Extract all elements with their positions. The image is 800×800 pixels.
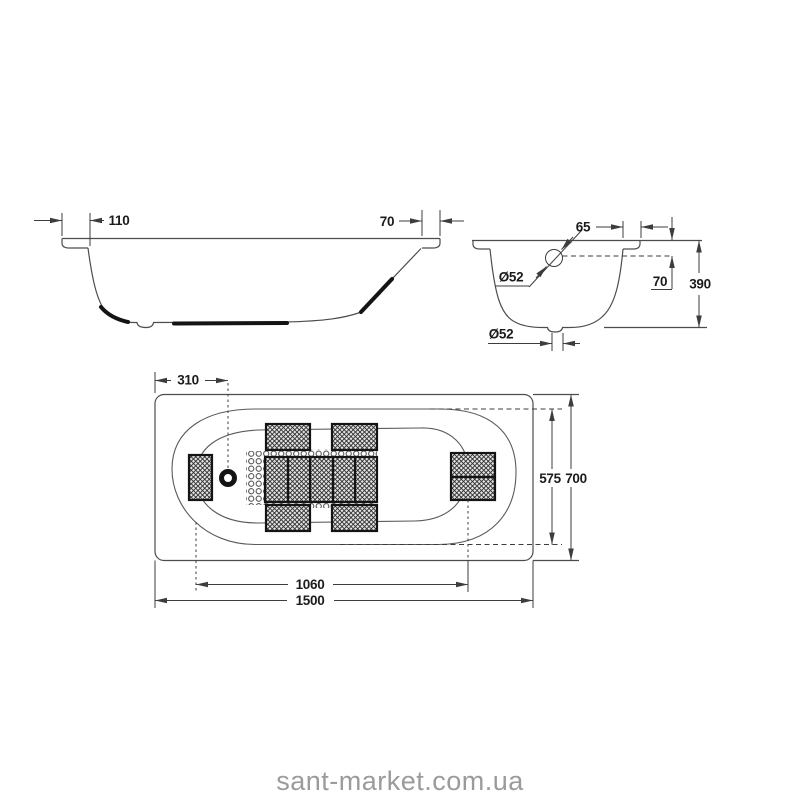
dim-label-65: 65	[576, 220, 591, 235]
dim-label-drain-diameter: Ø52	[489, 327, 514, 342]
antislip-pad-left	[189, 455, 212, 500]
side-view: 110 70	[34, 210, 464, 328]
antislip-pad-center	[265, 457, 377, 502]
antislip-dots-left	[246, 451, 266, 505]
floor-reinforcement-right	[361, 279, 392, 312]
top-view: 310 575 700 1060 1500	[155, 372, 587, 608]
dim-label-700: 700	[565, 471, 587, 486]
dim-label-575: 575	[539, 471, 561, 486]
antislip-pad-bottom-left	[266, 505, 310, 531]
dim-label-1060: 1060	[296, 577, 325, 592]
bathtub-technical-drawing: 110 70 Ø52 65 70 390	[0, 0, 800, 800]
dim-label-110: 110	[109, 213, 130, 228]
drawing-canvas: 110 70 Ø52 65 70 390	[0, 0, 800, 800]
dim-label-310: 310	[177, 373, 199, 388]
section-view: Ø52 65 70 390 Ø52	[472, 217, 711, 351]
drain-hole	[222, 472, 235, 485]
antislip-pad-top-right	[332, 424, 377, 450]
dim-label-70-side: 70	[380, 214, 394, 229]
watermark: sant-market.com.ua	[0, 766, 800, 797]
antislip-pad-top-left	[266, 424, 310, 450]
floor-reinforcement-middle	[174, 323, 287, 324]
dim-label-overflow-diameter: Ø52	[499, 270, 524, 285]
dim-label-390: 390	[689, 277, 711, 292]
dim-label-70-section: 70	[653, 274, 667, 289]
overflow-hole	[546, 250, 563, 267]
dim-label-1500: 1500	[296, 593, 325, 608]
antislip-pad-bottom-right	[332, 505, 377, 531]
floor-reinforcement-left	[101, 307, 128, 322]
